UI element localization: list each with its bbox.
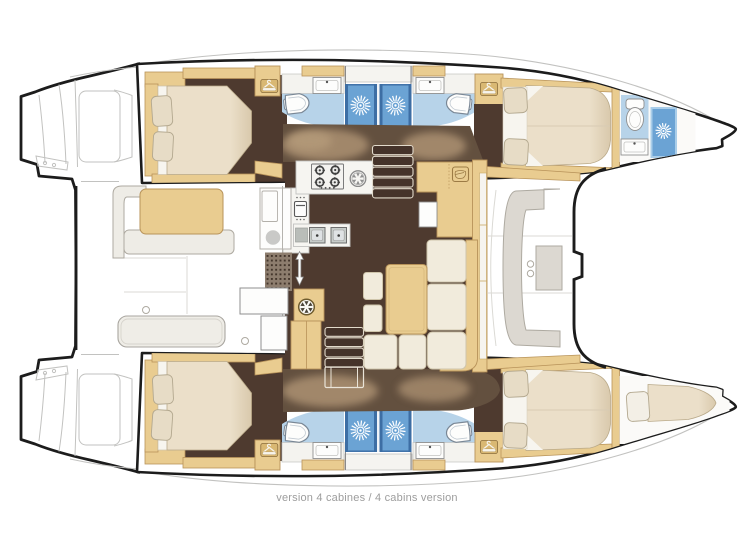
svg-text:version 4 cabines / 4 cabins v: version 4 cabines / 4 cabins version [276,492,457,504]
